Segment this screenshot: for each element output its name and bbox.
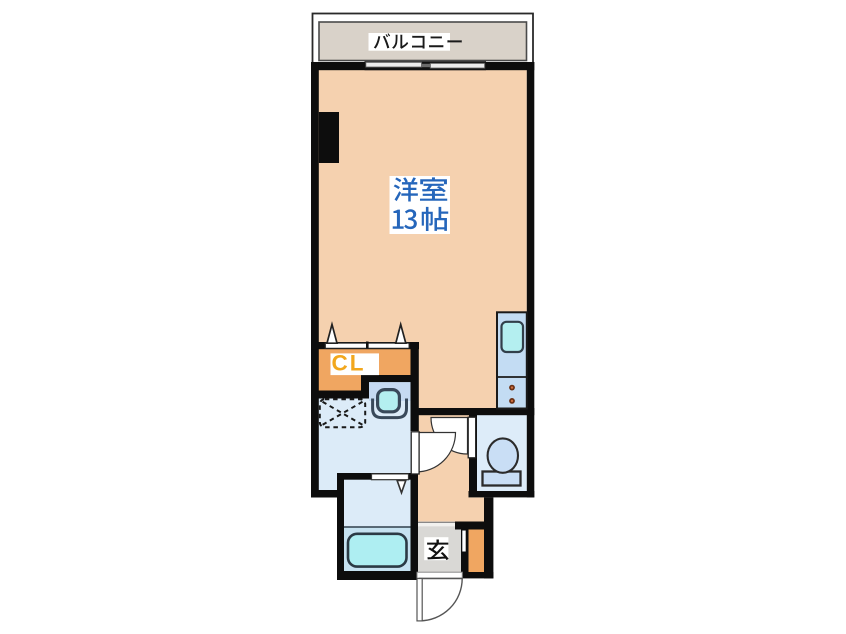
svg-text:CL: CL bbox=[332, 351, 366, 376]
